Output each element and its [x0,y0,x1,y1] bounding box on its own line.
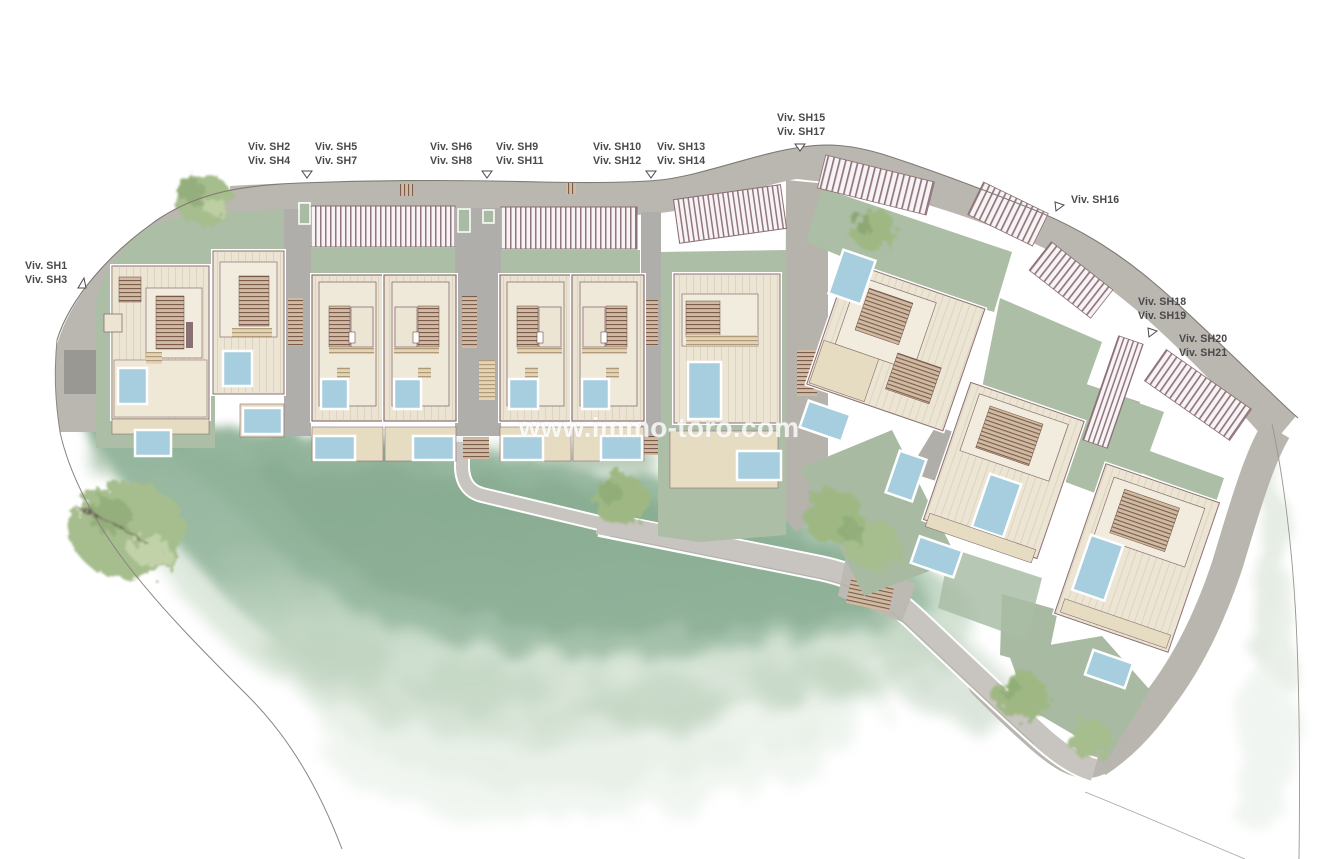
svg-text:Viv. SH6: Viv. SH6 [430,141,472,153]
svg-text:Viv. SH10: Viv. SH10 [593,141,641,153]
svg-text:Viv. SH21: Viv. SH21 [1179,347,1227,359]
svg-text:Viv. SH3: Viv. SH3 [25,274,67,286]
svg-text:Viv. SH7: Viv. SH7 [315,155,357,167]
svg-text:Viv. SH13: Viv. SH13 [657,141,705,153]
svg-text:Viv. SH15: Viv. SH15 [777,112,825,124]
svg-text:Viv. SH14: Viv. SH14 [657,155,705,167]
svg-text:Viv. SH20: Viv. SH20 [1179,333,1227,345]
svg-text:Viv. SH11: Viv. SH11 [496,155,544,167]
svg-text:Viv. SH9: Viv. SH9 [496,141,538,153]
svg-text:Viv. SH18: Viv. SH18 [1138,296,1186,308]
svg-text:Viv. SH17: Viv. SH17 [777,126,825,138]
svg-text:Viv. SH1: Viv. SH1 [25,260,67,272]
svg-text:Viv. SH2: Viv. SH2 [248,141,290,153]
svg-text:Viv. SH12: Viv. SH12 [593,155,641,167]
svg-text:Viv. SH4: Viv. SH4 [248,155,290,167]
svg-text:www.immo-toro.com: www.immo-toro.com [518,412,800,443]
svg-text:Viv. SH19: Viv. SH19 [1138,310,1186,322]
svg-text:Viv. SH5: Viv. SH5 [315,141,357,153]
svg-text:Viv. SH8: Viv. SH8 [430,155,472,167]
svg-text:Viv. SH16: Viv. SH16 [1071,194,1119,206]
